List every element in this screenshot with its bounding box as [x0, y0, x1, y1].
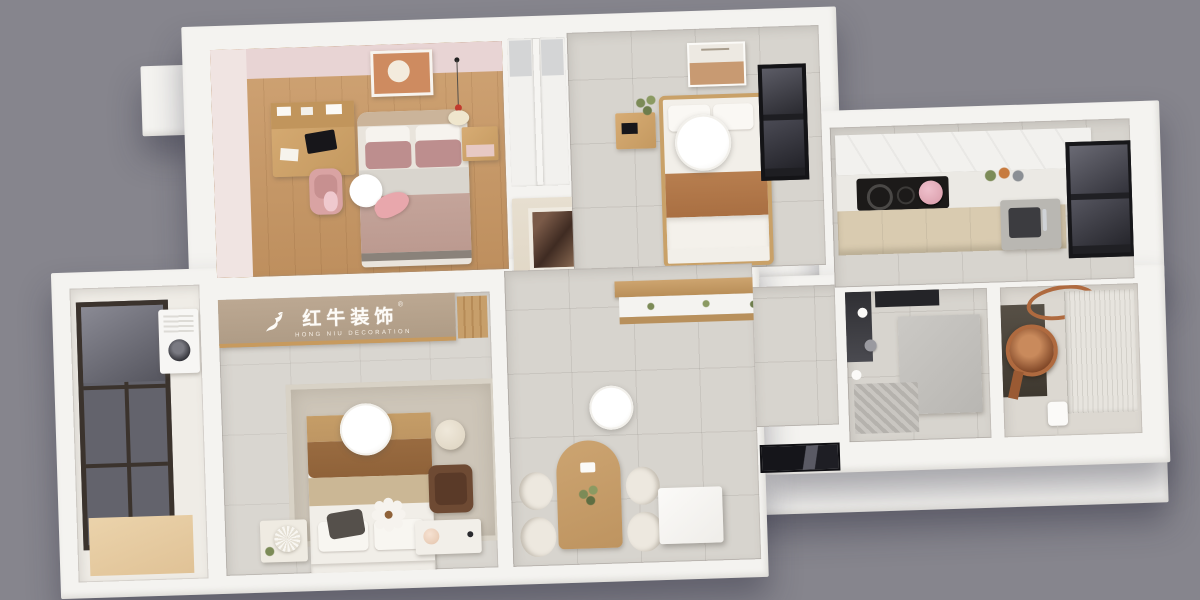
brown-blanket [665, 171, 768, 218]
glass-panel [845, 291, 873, 362]
wood-slats [457, 296, 488, 339]
apartment-plan: 红牛装饰® HONG NIU DECORATION [0, 0, 1200, 600]
sink-basin [1008, 207, 1041, 238]
flower-pillow-center [385, 511, 393, 519]
nightstand-drawer [466, 144, 494, 157]
dining-chair [518, 472, 553, 511]
registered-mark: ® [398, 301, 403, 308]
beige-blanket [308, 474, 433, 506]
cooktop [856, 176, 949, 211]
light-switch [1047, 401, 1068, 426]
burner [897, 186, 916, 205]
wardrobe-glass-panel [541, 39, 564, 76]
washer-drum [168, 339, 191, 362]
brand-logo-band: 红牛装饰® HONG NIU DECORATION [218, 293, 456, 348]
kitchen [830, 118, 1135, 287]
bunny-plush [323, 191, 338, 211]
shelf-papers [326, 104, 342, 114]
vanity-bathroom [1000, 283, 1143, 437]
kids-nightstand [462, 126, 499, 161]
wall-art [370, 49, 433, 97]
sink-unit [1000, 198, 1062, 250]
ball-lamp [423, 528, 439, 544]
shower-head [864, 339, 876, 351]
washer-vents [163, 314, 194, 333]
built-in-wardrobe-left [507, 38, 538, 187]
pink-kettle [918, 180, 943, 205]
logo-english: HONG NIU DECORATION [295, 329, 412, 339]
kitchen-window [1065, 140, 1134, 258]
pink-pillow [415, 139, 462, 167]
wardrobe-glass-panel [509, 40, 532, 77]
laptop [304, 129, 337, 154]
small-speaker [467, 531, 473, 537]
second-bedroom [567, 25, 826, 273]
dining-pendant-lamp [589, 385, 634, 430]
leather-armchair [428, 464, 473, 513]
shower-room [845, 288, 992, 442]
drain-mat [854, 382, 920, 434]
switch-cord [1057, 426, 1058, 436]
window-glass [81, 305, 165, 384]
pleated-lamp [274, 526, 301, 553]
corridor [750, 285, 839, 428]
bull-logo-icon [262, 309, 289, 336]
dining-chair [625, 466, 660, 505]
wardrobe-niche [507, 37, 570, 187]
poster-caption [701, 48, 729, 51]
shower-glass-door [875, 289, 939, 307]
digital-clock [621, 123, 637, 134]
exterior-window-strip [760, 443, 841, 473]
faucet [1042, 209, 1047, 231]
logo-text-group: 红牛装饰® HONG NIU DECORATION [294, 301, 412, 339]
wall-poster [687, 41, 746, 87]
burner [867, 184, 894, 211]
wall-art-motif [387, 60, 410, 83]
plant [633, 92, 660, 119]
master-bedroom: 红牛装饰® HONG NIU DECORATION [218, 291, 499, 575]
built-in-wardrobe-right [539, 37, 570, 186]
desk-with-hutch [271, 101, 356, 178]
logo-chinese: 红牛装饰 [302, 306, 399, 330]
window-glass [762, 68, 803, 115]
window-glass [763, 120, 804, 169]
folded-duvet [666, 215, 769, 250]
remote-control [580, 462, 595, 472]
plant [263, 544, 277, 558]
dining-area [504, 263, 761, 567]
washing-machine [158, 309, 200, 374]
balcony [69, 285, 208, 583]
dining-chair [520, 516, 557, 557]
window-glass [1069, 144, 1128, 194]
shelf-papers [277, 107, 291, 116]
shelf-papers [301, 107, 313, 115]
ceiling-spot [851, 370, 861, 380]
sheer-curtain [1064, 289, 1138, 413]
table-plant [575, 482, 604, 509]
groceries [981, 164, 1028, 187]
arched-dining-table [555, 439, 622, 549]
armchair-seat [434, 472, 467, 505]
white-fridge-cabinet [658, 486, 724, 544]
desk-papers [280, 148, 299, 161]
render-background: 红牛装饰® HONG NIU DECORATION [0, 0, 1200, 600]
poster-landscape [690, 61, 745, 85]
nightstand-left [260, 519, 308, 562]
pink-pillow [365, 141, 412, 169]
window-glass [1071, 198, 1130, 246]
kids-bedroom [210, 41, 509, 278]
wood-mat [89, 515, 195, 576]
bedroom-window [758, 63, 810, 180]
nightstand-right [415, 519, 482, 555]
pink-wall-left [210, 49, 253, 278]
